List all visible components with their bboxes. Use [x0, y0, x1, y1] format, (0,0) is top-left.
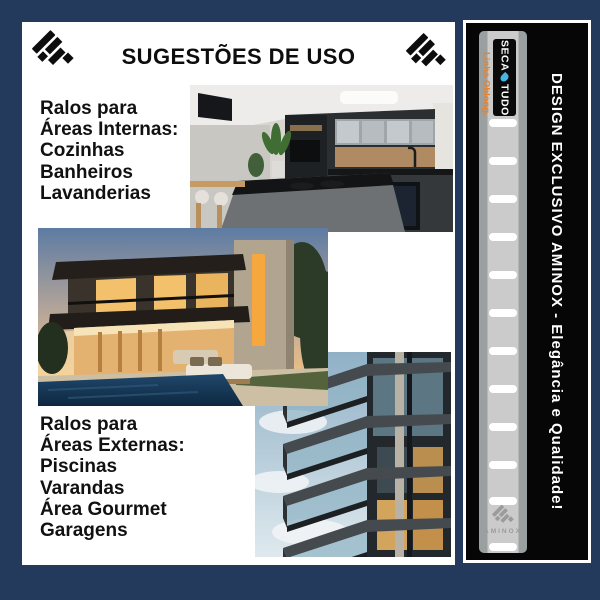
text-line: Piscinas: [40, 456, 250, 477]
text-line: Banheiros: [40, 162, 250, 183]
aminox-stamp: AMINOX: [479, 503, 527, 535]
drain-slot: [489, 543, 517, 551]
drain-slot: [489, 233, 517, 241]
drain-slot: [489, 195, 517, 203]
drain-product-image: Linha Oblong. SECA TUDO: [479, 31, 527, 553]
product-line-label: Linha Oblong.: [479, 41, 493, 127]
aminox-logo-icon: [491, 503, 515, 527]
flyer-background: SUGESTÕES DE USO: [0, 0, 600, 600]
secatudo-brand-label: SECA TUDO: [493, 39, 516, 116]
drain-slot: [489, 157, 517, 165]
text-line: Varandas: [40, 478, 250, 499]
text-line: Áreas Externas:: [40, 435, 250, 456]
aminox-logo-text: AMINOX: [484, 528, 522, 535]
drain-slot: [489, 119, 517, 127]
main-card: SUGESTÕES DE USO: [22, 22, 455, 565]
drain-slot: [489, 309, 517, 317]
house-photo: [38, 228, 328, 406]
text-line: Ralos para: [40, 98, 250, 119]
text-line: Ralos para: [40, 414, 250, 435]
brand-prefix: SECA: [499, 40, 511, 71]
external-areas-text: Ralos para Áreas Externas: Piscinas Vara…: [40, 414, 250, 541]
text-line: Lavanderias: [40, 183, 250, 204]
water-droplet-icon: [499, 72, 510, 83]
text-line: Garagens: [40, 520, 250, 541]
brand-suffix: TUDO: [499, 84, 511, 116]
drain-slot: [489, 271, 517, 279]
text-line: Cozinhas: [40, 140, 250, 161]
drain-slot: [489, 347, 517, 355]
side-panel: Linha Oblong. SECA TUDO: [463, 20, 591, 563]
page-title: SUGESTÕES DE USO: [22, 44, 455, 70]
internal-areas-text: Ralos para Áreas Internas: Cozinhas Banh…: [40, 98, 250, 204]
text-line: Área Gourmet: [40, 499, 250, 520]
slogan-vertical-text: DESIGN EXCLUSIVO AMINOX - Elegância e Qu…: [528, 23, 585, 560]
aminox-diamond-icon: [404, 30, 448, 74]
drain-slot: [489, 385, 517, 393]
drain-slot: [489, 461, 517, 469]
text-line: Áreas Internas:: [40, 119, 250, 140]
drain-slot: [489, 423, 517, 431]
